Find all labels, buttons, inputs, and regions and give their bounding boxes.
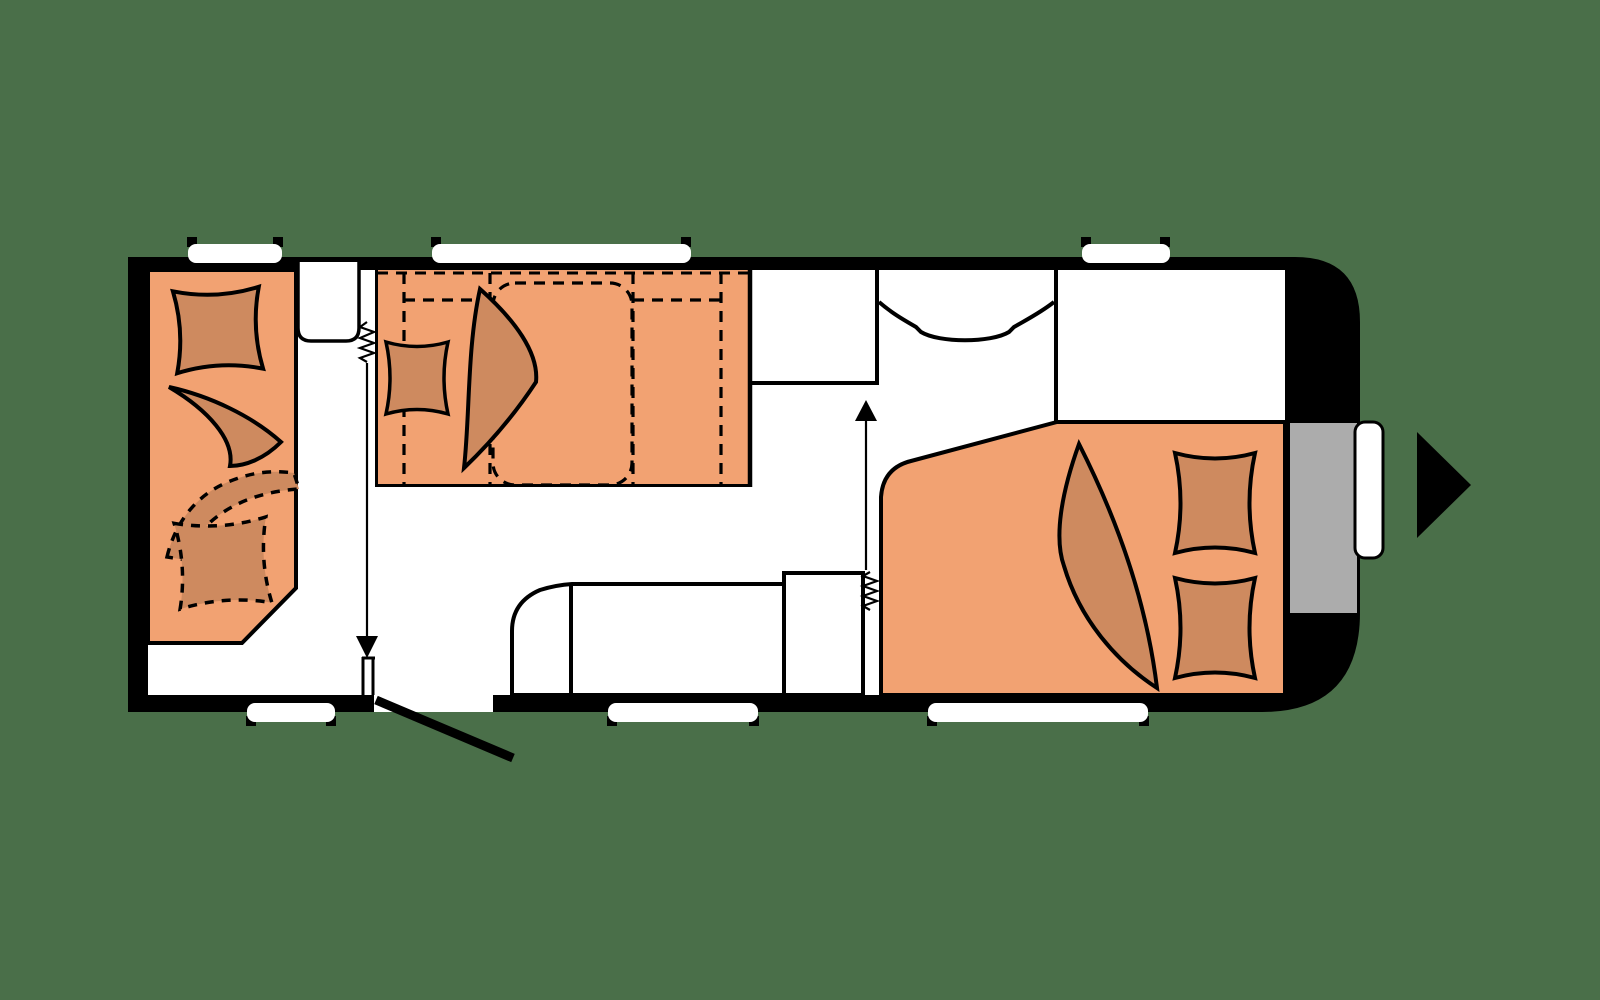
bunk-pillow — [386, 342, 448, 414]
rear-bed-pillow-1 — [1175, 453, 1255, 553]
rear-bed — [881, 422, 1285, 695]
rear-bed-pillow-2 — [1175, 578, 1255, 678]
kitchen-counter — [512, 584, 784, 695]
entry-door-gray — [1290, 423, 1357, 613]
door-stub — [362, 657, 375, 696]
lounge-pillow — [173, 287, 263, 373]
rear-entry — [1290, 422, 1471, 613]
window-front-bottom — [246, 703, 336, 726]
front-lounge — [148, 270, 299, 643]
lounge-pillow-dashed — [174, 517, 272, 609]
floorplan-canvas — [0, 0, 1600, 1000]
travel-direction-arrow-icon — [1417, 432, 1471, 538]
window-front-top — [187, 237, 283, 263]
front-cabinet — [298, 262, 359, 341]
window-kitchen-bottom — [607, 703, 759, 726]
entry-door-handle — [1355, 422, 1383, 558]
kitchen-tall-cabinet — [784, 573, 863, 695]
entrance — [374, 695, 513, 758]
kitchen — [512, 573, 863, 695]
window-bunk-top — [431, 237, 691, 263]
center-bunk-bed — [375, 270, 750, 487]
caravan-floorplan — [0, 0, 1600, 1000]
window-washroom-top — [1081, 237, 1170, 263]
window-rearbed-bottom — [927, 703, 1149, 726]
